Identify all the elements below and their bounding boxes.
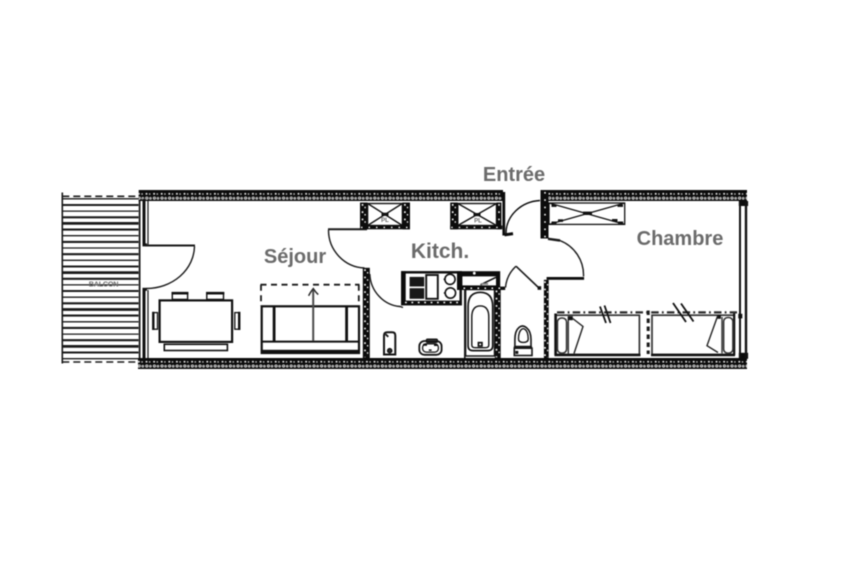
- svg-text:Entrée: Entrée: [483, 164, 545, 186]
- svg-text:BALCON: BALCON: [89, 279, 118, 288]
- svg-text:Chambre: Chambre: [637, 228, 724, 250]
- svg-text:Séjour: Séjour: [264, 246, 326, 268]
- svg-text:Kitch.: Kitch.: [411, 240, 469, 263]
- svg-text:PL: PL: [474, 219, 482, 225]
- svg-text:PL: PL: [381, 218, 389, 224]
